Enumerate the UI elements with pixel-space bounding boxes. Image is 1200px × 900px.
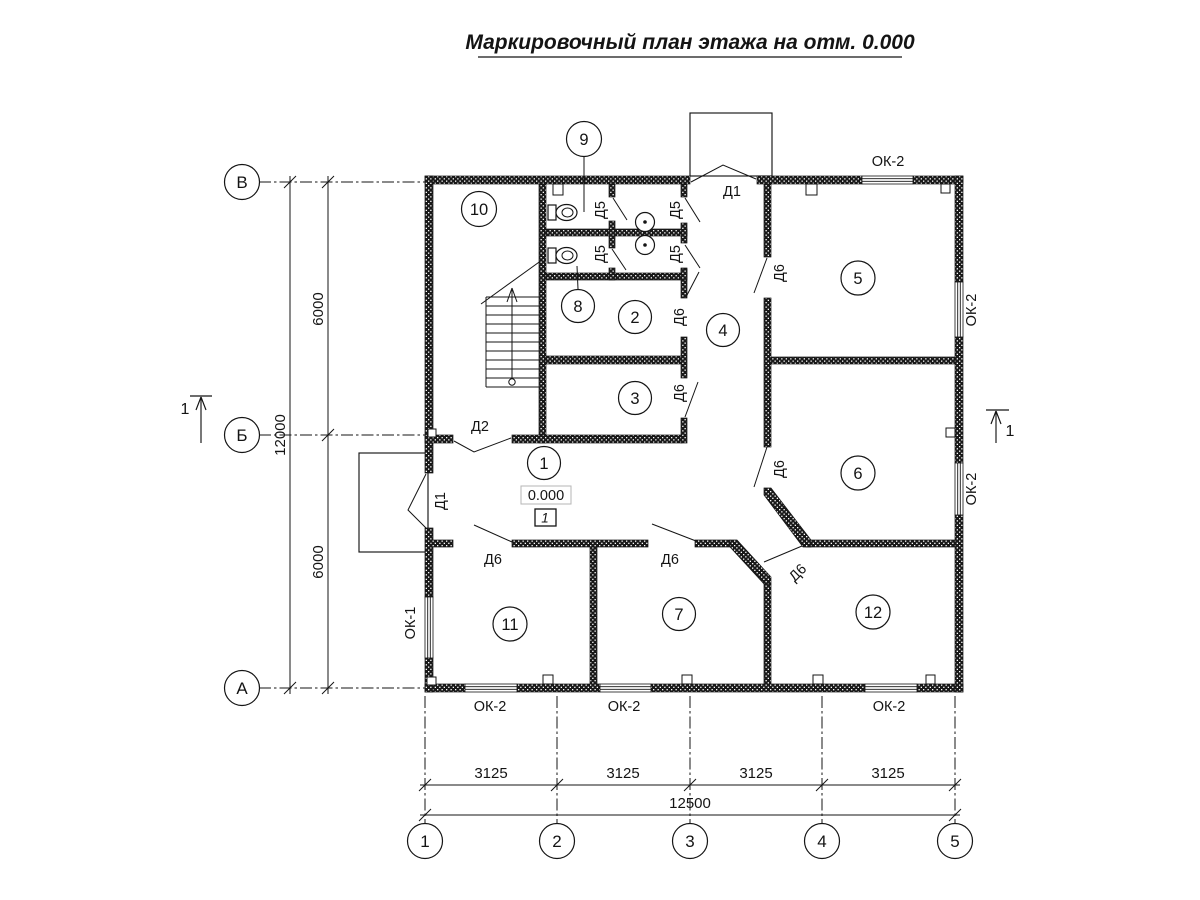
drawing-title: Маркировочный план этажа на отм. 0.000: [465, 31, 915, 57]
toilet-lower: [548, 248, 577, 264]
door-leaf-d1-left: [408, 474, 426, 528]
door-label-d1-top: Д1: [723, 184, 741, 200]
axis-number-4: 4: [817, 832, 826, 851]
window-label-ok2-right-lower: ОК-2: [964, 473, 980, 506]
door-label-d5-3: Д5: [593, 245, 609, 263]
section-mark-right: 1: [986, 410, 1015, 443]
door-leaf-d6-room2: [686, 272, 699, 297]
door-label-d6-4: Д6: [772, 460, 788, 478]
door-label-d6-2: Д6: [672, 384, 688, 402]
window-ok1-left: [425, 597, 433, 658]
dim-12000: 12000: [272, 414, 289, 456]
dim-12500: 12500: [669, 795, 711, 812]
axis-number-2: 2: [552, 832, 561, 851]
door-leaf-d5-2: [612, 249, 626, 270]
room-number-3: 3: [630, 390, 639, 408]
dim-6000-lower: 6000: [310, 545, 327, 578]
room-number-11: 11: [501, 616, 518, 634]
room-number-7: 7: [674, 606, 683, 624]
dim-6000-upper: 6000: [310, 292, 327, 325]
door-leaf-d2: [454, 438, 511, 452]
door-leaf-d5-1: [613, 198, 627, 220]
washbasin-upper: [636, 213, 655, 232]
room8-leader: [577, 266, 578, 289]
door-label-d6-6: Д6: [661, 552, 679, 568]
door-label-d6-7: Д6: [786, 561, 810, 585]
door-label-d5-1: Д5: [593, 201, 609, 219]
toilet-upper: [548, 205, 577, 221]
door-label-d6-1: Д6: [672, 308, 688, 326]
room-number-2: 2: [630, 309, 639, 327]
door-label-d6-3: Д6: [772, 264, 788, 282]
axis-number-3: 3: [685, 832, 694, 851]
room-number-10: 10: [470, 201, 488, 219]
window-ok2-top: [862, 176, 913, 184]
floor-plan-drawing: Маркировочный план этажа на отм. 0.000 В…: [0, 0, 1200, 900]
section-label-left: 1: [181, 401, 190, 418]
door-leaf-d6-room5: [754, 258, 767, 293]
dim-3125-3: 3125: [739, 765, 772, 782]
room-number-9: 9: [579, 131, 588, 149]
stair-direction-arrow: [507, 288, 517, 385]
room-number-1: 1: [539, 455, 548, 473]
door-leaf-d6-room12: [764, 546, 802, 562]
room-number-6: 6: [853, 465, 862, 483]
elevation-mark: 0.000 1: [521, 486, 571, 526]
room-number-8: 8: [573, 298, 582, 316]
window-label-ok1-left: ОК-1: [403, 607, 419, 640]
washbasin-lower: [636, 236, 655, 255]
window-label-ok2-right-upper: ОК-2: [964, 294, 980, 327]
left-porch: [359, 453, 428, 552]
door-label-d5-4: Д5: [668, 245, 684, 263]
door-label-d6-5: Д6: [484, 552, 502, 568]
axis-number-1: 1: [420, 832, 429, 851]
elevation-value: 0.000: [528, 488, 564, 504]
dim-3125-4: 3125: [871, 765, 904, 782]
door-leaf-d1-top: [691, 165, 756, 182]
room-number-12: 12: [864, 604, 882, 622]
axis-letter-v: В: [236, 173, 247, 192]
axis-letter-a: А: [236, 679, 248, 698]
window-label-ok2-bottom-2: ОК-2: [608, 699, 641, 715]
floor-plan-sheet: Маркировочный план этажа на отм. 0.000 В…: [0, 0, 1200, 900]
window-ok2-bottom-2: [600, 684, 651, 692]
window-label-ok2-bottom-1: ОК-2: [474, 699, 507, 715]
top-porch: [690, 113, 772, 176]
section-mark-left: 1: [181, 396, 212, 443]
window-ok2-bottom-3: [865, 684, 917, 692]
staircase: [481, 260, 542, 387]
door-leaf-d6-room6: [754, 447, 767, 487]
axis-row-bubbles: В Б А: [225, 165, 260, 706]
room-number-4: 4: [718, 322, 727, 340]
window-ok2-right-lower: [955, 463, 963, 515]
mark-labels: Д1 Д1 Д2 Д5 Д5 Д5 Д5 Д6 Д6 Д6 Д6 Д6 Д6 Д…: [403, 154, 980, 715]
dim-3125-2: 3125: [606, 765, 639, 782]
door-label-d1-left: Д1: [433, 492, 449, 510]
page-title: Маркировочный план этажа на отм. 0.000: [465, 31, 915, 54]
door-leaf-d6-room7: [652, 524, 696, 541]
window-ok2-right-upper: [955, 282, 963, 337]
dim-3125-1: 3125: [474, 765, 507, 782]
door-leaf-d6-room11: [474, 525, 512, 542]
window-ok2-bottom-1: [465, 684, 517, 692]
door-label-d5-2: Д5: [668, 201, 684, 219]
axis-col-bubbles: 1 2 3 4 5: [408, 824, 973, 859]
door-label-d2: Д2: [471, 419, 489, 435]
section-label-right: 1: [1006, 423, 1015, 440]
floor-number: 1: [541, 511, 549, 526]
window-label-ok2-bottom-3: ОК-2: [873, 699, 906, 715]
axis-number-5: 5: [950, 832, 959, 851]
room-number-5: 5: [853, 270, 862, 288]
door-leaf-d5-3: [685, 198, 700, 222]
axis-letter-b: Б: [236, 426, 247, 445]
door-leaf-d5-4: [685, 245, 700, 268]
window-label-ok2-top: ОК-2: [872, 154, 905, 170]
